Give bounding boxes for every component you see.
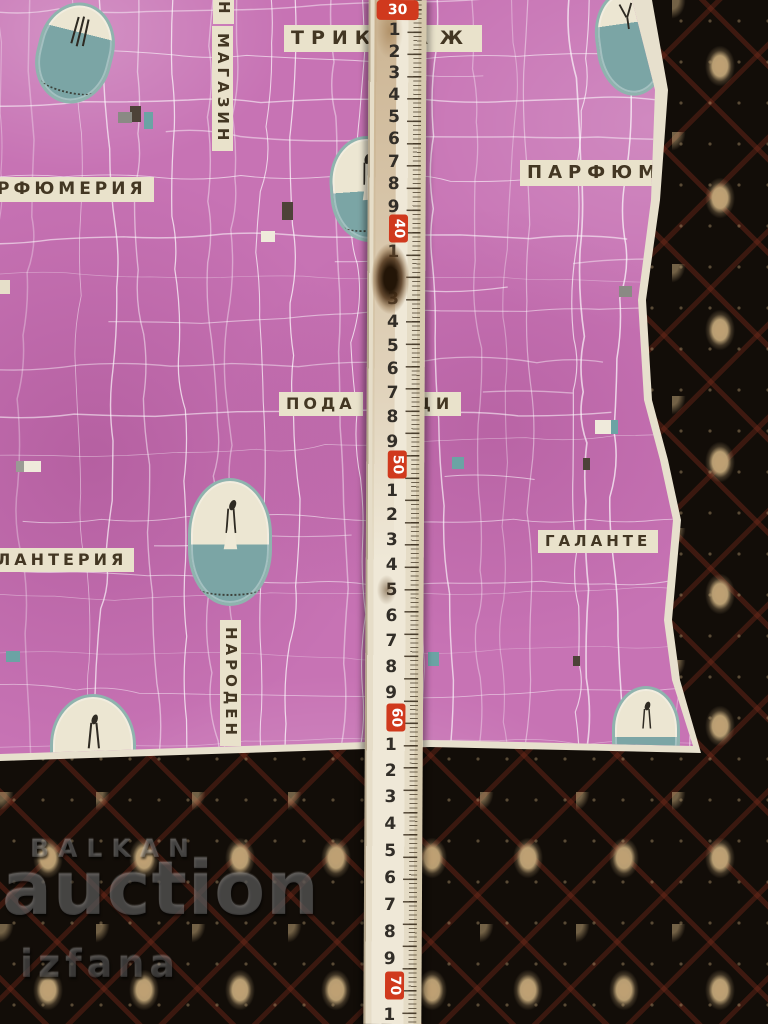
crosshatch-line — [418, 287, 508, 292]
confetti-square — [16, 461, 41, 472]
crosshatch-line — [351, 0, 366, 780]
ruler-cm-digit: 2 — [377, 761, 405, 781]
ruler-decade-mark: 30 — [377, 0, 419, 20]
confetti-square — [118, 112, 132, 123]
ruler-cm-digit: 7 — [376, 895, 404, 915]
watermark-izfana: izfana — [20, 942, 180, 986]
ruler-cm-digit: 2 — [380, 42, 408, 62]
label-galanteria-right: ГАЛАНТЕ — [538, 530, 658, 553]
crosshatch-line — [0, 357, 603, 370]
badge-text-dots — [40, 73, 94, 99]
crosshatch-line — [256, 0, 273, 780]
crosshatch-line — [483, 391, 573, 393]
ruler-cm-digit: 8 — [380, 174, 408, 194]
ruler-cm-digit: 3 — [376, 787, 404, 807]
confetti-square — [261, 231, 275, 242]
confetti-square — [573, 656, 580, 666]
confetti-square — [428, 652, 439, 666]
crosshatch-line — [445, 475, 535, 479]
confetti-square — [452, 457, 464, 469]
badge-figure-icon — [631, 695, 661, 747]
crosshatch-line — [610, 0, 635, 780]
crosshatch-line — [72, 0, 93, 780]
ruler-cm-digit: 7 — [379, 383, 407, 403]
crosshatch-line — [285, 0, 300, 780]
label-magazin: МАГАЗИН — [212, 26, 233, 151]
crosshatch-line — [331, 0, 349, 780]
crosshatch-line — [500, 0, 518, 780]
ruler-cm-digit: 7 — [377, 631, 405, 651]
ruler-decade-mark: 70 — [385, 971, 404, 999]
crosshatch-line — [0, 0, 2, 780]
ruler-cm-digit: 8 — [377, 657, 405, 677]
ruler-dirt-blob — [369, 240, 411, 332]
label-naroden: НАРОДЕН — [220, 620, 241, 746]
badge-figure-icon — [54, 8, 102, 74]
crosshatch-line — [471, 0, 482, 780]
crosshatch-line — [16, 0, 36, 780]
ruler-cm-digit: 3 — [380, 63, 408, 83]
crosshatch-line — [93, 0, 118, 780]
confetti-square — [282, 202, 293, 220]
ruler-cm-digit: 8 — [378, 407, 406, 427]
confetti-square — [583, 458, 590, 470]
ruler-cm-digit: 6 — [376, 868, 404, 888]
confetti-square — [595, 420, 618, 434]
folding-ruler: 3012345678940123456789501234567896012345… — [363, 0, 426, 1024]
crosshatch-line — [0, 233, 627, 244]
ruler-cm-digit: 8 — [376, 922, 404, 942]
ruler-cm-digit: 4 — [380, 85, 408, 105]
label-podartsi-left: ПОДА — [279, 392, 363, 416]
watermark-auction: auction — [2, 846, 320, 932]
crosshatch-line — [171, 0, 186, 780]
ruler-cm-digit: 9 — [377, 683, 405, 703]
label-parfumeria: РФЮМЕРИЯ — [0, 177, 154, 202]
ruler-cm-digit: 9 — [376, 949, 404, 969]
ruler-stain — [373, 570, 399, 610]
ruler-decade-mark: 50 — [388, 450, 407, 478]
ruler-decade-mark: 40 — [389, 214, 408, 242]
shop-emblem-badge — [188, 478, 272, 606]
badge-text-dots — [200, 582, 260, 596]
confetti-square — [144, 112, 153, 129]
confetti-square — [619, 286, 632, 297]
ruler-cm-digit: 5 — [376, 841, 404, 861]
ruler-cm-digit: 1 — [378, 481, 406, 501]
ruler-cm-digit: 9 — [378, 432, 406, 452]
ruler-cm-digit: 4 — [376, 814, 404, 834]
badge-figure-icon — [212, 488, 248, 560]
ruler-cm-digit: 1 — [375, 1005, 403, 1024]
label-galanteria-left: ЛАНТЕРИЯ — [0, 548, 134, 572]
photo-scene: BALKAN auction izfana — [0, 0, 768, 1024]
label-magazin-partial: Н — [213, 0, 234, 24]
ruler-cm-digit: 7 — [380, 152, 408, 172]
confetti-square — [6, 651, 20, 662]
ruler-cm-digit: 6 — [379, 359, 407, 379]
ruler-cm-digit: 3 — [378, 530, 406, 550]
ruler-cm-digit: 2 — [378, 505, 406, 525]
confetti-square — [0, 280, 10, 294]
ruler-cm-digit: 1 — [377, 735, 405, 755]
ruler-cm-digit: 5 — [379, 336, 407, 356]
label-parfum: ПАРФЮМ — [520, 160, 669, 186]
ruler-cm-digit: 6 — [380, 129, 408, 149]
ruler-cm-digit: 1 — [380, 20, 408, 40]
crosshatch-line — [262, 535, 352, 537]
crosshatch-line — [520, 0, 534, 780]
ruler-cm-digit: 5 — [380, 107, 408, 127]
ruler-decade-mark: 60 — [386, 703, 405, 731]
